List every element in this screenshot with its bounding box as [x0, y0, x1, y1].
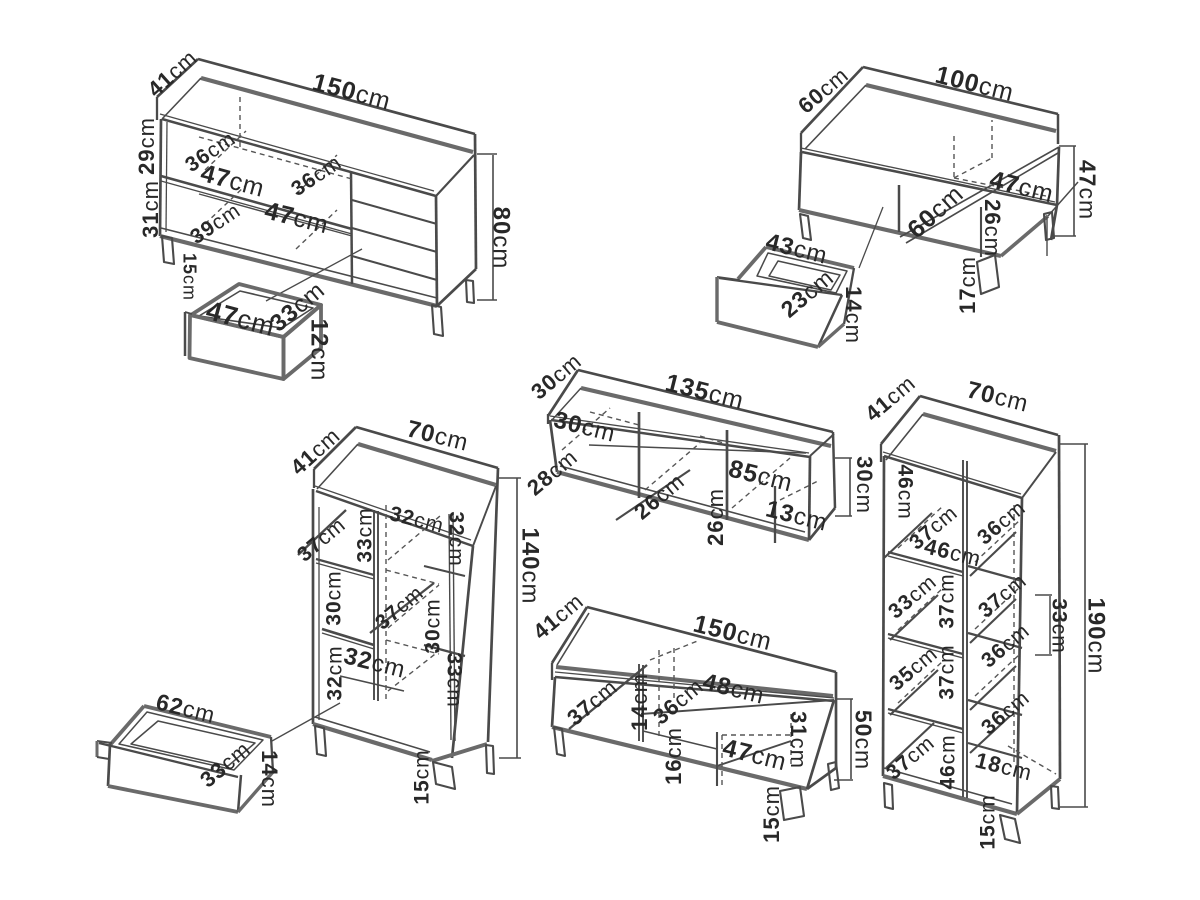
- svg-text:26cm: 26cm: [980, 199, 1005, 257]
- svg-text:31cm: 31cm: [786, 711, 811, 769]
- svg-text:15cm: 15cm: [759, 785, 784, 843]
- svg-text:32cm: 32cm: [444, 511, 467, 566]
- svg-text:14cm: 14cm: [257, 750, 282, 808]
- svg-text:12cm: 12cm: [305, 319, 332, 382]
- svg-text:46cm: 46cm: [937, 734, 960, 789]
- svg-text:16cm: 16cm: [661, 727, 686, 785]
- svg-text:140cm: 140cm: [516, 527, 543, 604]
- svg-text:33cm: 33cm: [354, 507, 377, 562]
- svg-text:80cm: 80cm: [487, 207, 514, 270]
- svg-text:46cm: 46cm: [893, 464, 916, 519]
- svg-text:32cm: 32cm: [324, 645, 347, 700]
- svg-text:30cm: 30cm: [852, 456, 877, 514]
- svg-text:29cm: 29cm: [134, 117, 159, 175]
- svg-text:14cm: 14cm: [841, 286, 866, 344]
- svg-text:33cm: 33cm: [442, 652, 465, 707]
- svg-text:26cm: 26cm: [703, 488, 728, 546]
- svg-text:190cm: 190cm: [1082, 597, 1109, 674]
- svg-text:15cm: 15cm: [411, 749, 434, 804]
- svg-text:47cm: 47cm: [1075, 160, 1101, 220]
- svg-text:31cm: 31cm: [138, 180, 163, 238]
- svg-text:30cm: 30cm: [323, 570, 346, 625]
- svg-text:15cm: 15cm: [180, 253, 200, 301]
- svg-text:37cm: 37cm: [936, 573, 959, 628]
- svg-text:50cm: 50cm: [851, 710, 877, 770]
- svg-text:33cm: 33cm: [1047, 598, 1070, 653]
- svg-text:17cm: 17cm: [955, 256, 980, 314]
- svg-text:30cm: 30cm: [422, 598, 445, 653]
- svg-text:15cm: 15cm: [977, 794, 1000, 849]
- svg-text:14cm: 14cm: [627, 673, 652, 731]
- svg-text:37cm: 37cm: [936, 644, 959, 699]
